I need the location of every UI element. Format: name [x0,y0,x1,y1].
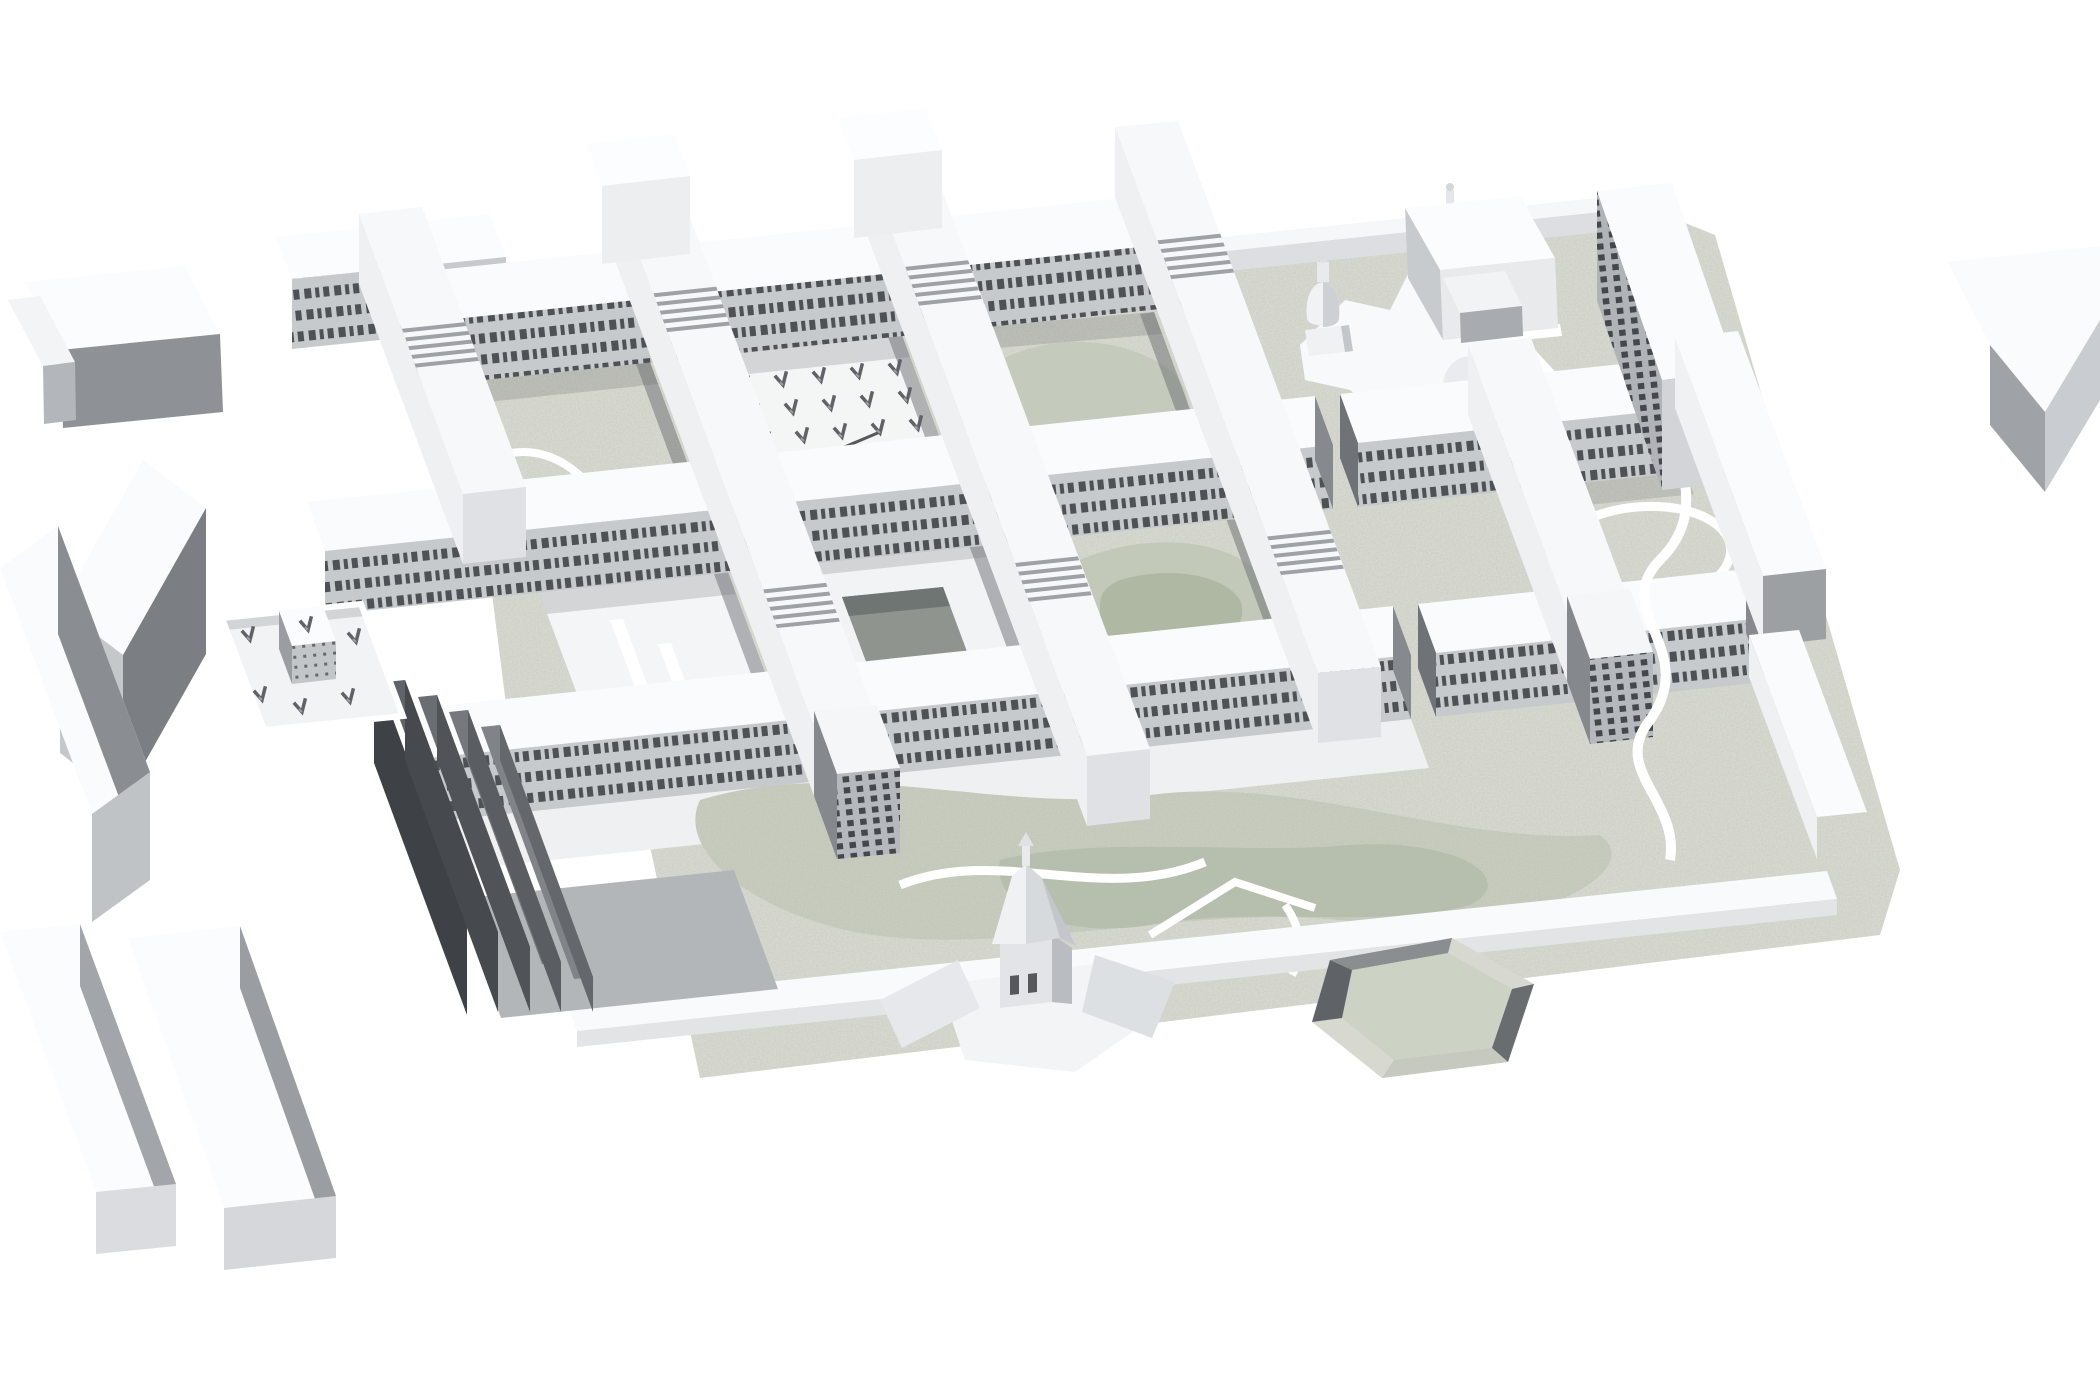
bridge-a0-south-face [463,487,526,564]
gate-pavilion-door-2 [1028,973,1037,993]
west-court-cube-dots [292,641,336,684]
context-nw-face [60,334,223,428]
context-sw-slab2-cap [224,1196,336,1270]
bridge-a2-south-face [1087,749,1150,826]
gate-pavilion-door-1 [1010,975,1019,995]
context-sw-slab1-cap [96,1184,176,1254]
bridge-a2-headhouse-face [854,150,942,238]
spire-tower-finial-cap [1446,183,1454,191]
onion-dome-drum [1317,262,1329,282]
context-nw-stub-face [43,362,76,424]
bridge-a1-headhouse-face [602,176,690,264]
bridge-a3-south-face [1318,667,1381,743]
campus-massing-model-rendering [0,0,2100,1394]
stair-tower1-windows [837,768,900,859]
gate-pavilion-tower-front [1000,934,1052,1008]
bell-tower-base [1305,326,1345,356]
architectural-rendering-viewport [0,0,2100,1394]
